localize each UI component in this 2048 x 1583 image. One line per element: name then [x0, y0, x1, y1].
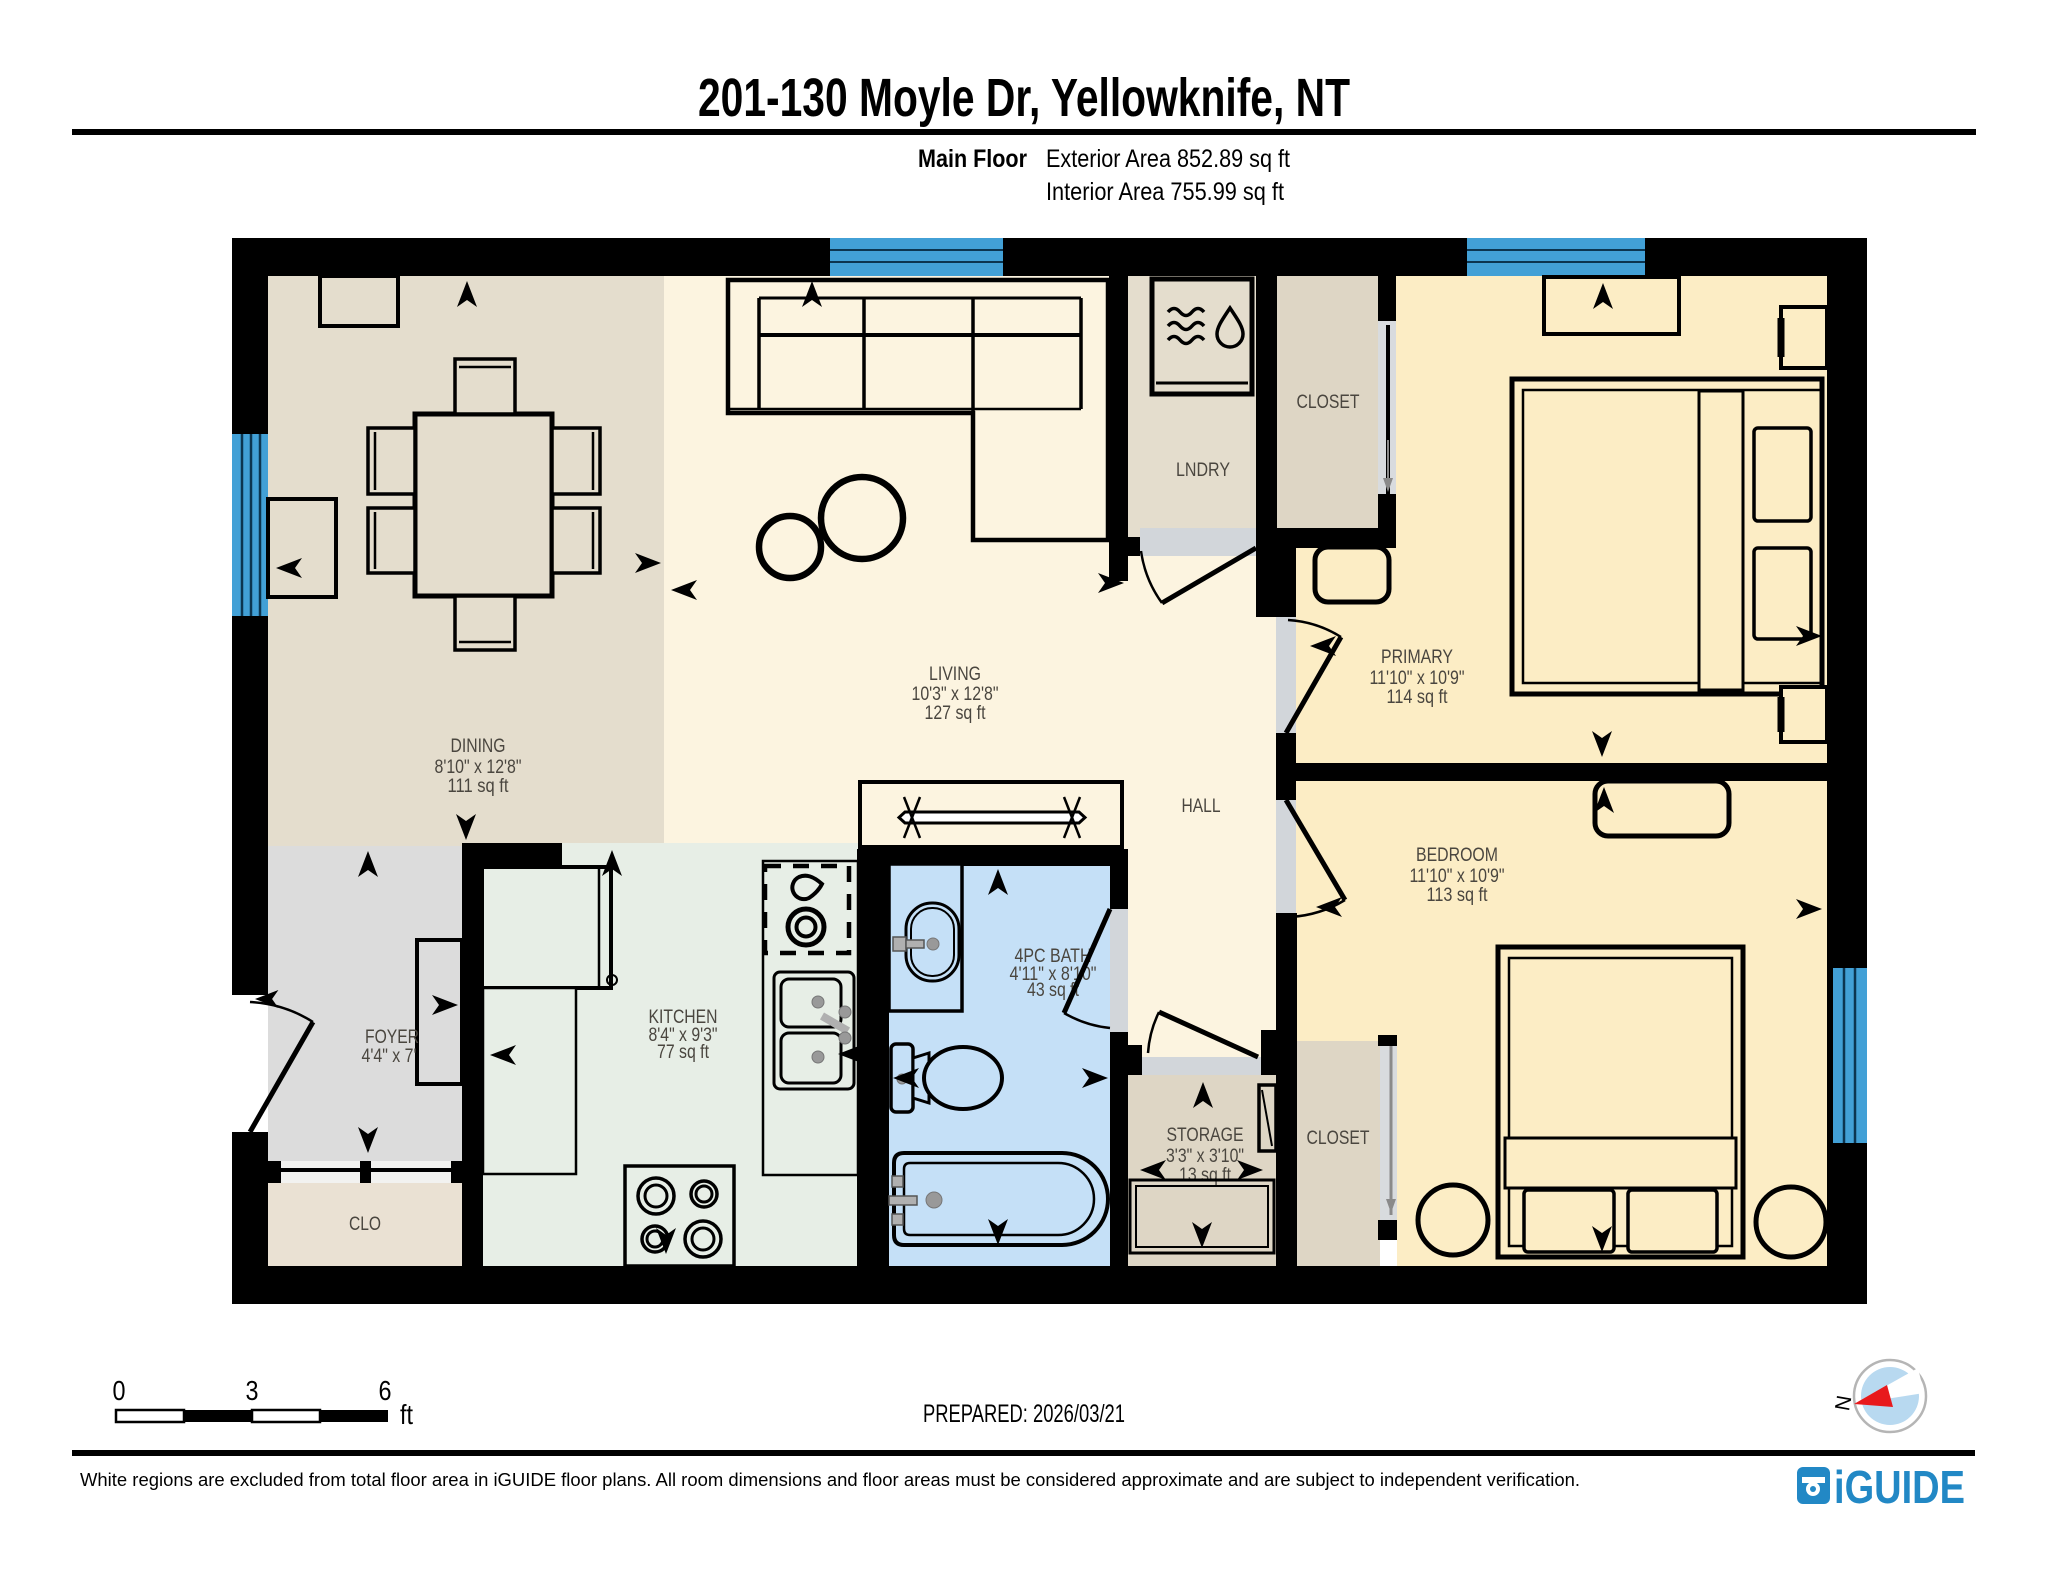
svg-text:HALL: HALL [1182, 796, 1221, 817]
svg-text:6: 6 [379, 1375, 392, 1406]
svg-text:BEDROOM: BEDROOM [1416, 845, 1498, 866]
svg-text:13 sq ft: 13 sq ft [1179, 1165, 1232, 1186]
svg-text:FOYER: FOYER [365, 1027, 419, 1048]
svg-text:PREPARED: 2026/03/21: PREPARED: 2026/03/21 [923, 1400, 1125, 1428]
svg-text:127 sq ft: 127 sq ft [925, 703, 987, 724]
svg-text:STORAGE: STORAGE [1167, 1125, 1244, 1146]
svg-text:Exterior Area 852.89 sq ft: Exterior Area 852.89 sq ft [1046, 145, 1290, 173]
svg-text:77 sq ft: 77 sq ft [657, 1042, 710, 1063]
svg-text:10'3" x 12'8": 10'3" x 12'8" [912, 684, 999, 705]
svg-text:Main Floor: Main Floor [918, 145, 1027, 173]
svg-text:PRIMARY: PRIMARY [1381, 647, 1453, 668]
svg-text:iGUIDE: iGUIDE [1834, 1461, 1965, 1513]
svg-text:CLO: CLO [349, 1214, 381, 1235]
svg-text:LIVING: LIVING [929, 664, 981, 685]
svg-text:113 sq ft: 113 sq ft [1427, 885, 1489, 906]
svg-text:201-130 Moyle Dr, Yellowknife,: 201-130 Moyle Dr, Yellowknife, NT [698, 68, 1350, 128]
svg-text:4'4" x 7': 4'4" x 7' [362, 1046, 417, 1067]
svg-text:3'3" x 3'10": 3'3" x 3'10" [1166, 1146, 1244, 1167]
svg-text:LNDRY: LNDRY [1176, 460, 1230, 481]
svg-text:114 sq ft: 114 sq ft [1387, 687, 1449, 708]
svg-text:White regions are excluded fro: White regions are excluded from total fl… [80, 1470, 1580, 1490]
svg-text:ft: ft [400, 1399, 413, 1430]
svg-text:CLOSET: CLOSET [1297, 392, 1360, 413]
svg-text:0: 0 [113, 1375, 126, 1406]
svg-text:3: 3 [246, 1375, 259, 1406]
svg-text:CLOSET: CLOSET [1307, 1128, 1370, 1149]
svg-text:11'10" x 10'9": 11'10" x 10'9" [1410, 866, 1505, 887]
svg-text:11'10" x 10'9": 11'10" x 10'9" [1370, 668, 1465, 689]
svg-text:Interior Area 755.99 sq ft: Interior Area 755.99 sq ft [1046, 178, 1284, 206]
svg-text:8'10" x 12'8": 8'10" x 12'8" [435, 757, 522, 778]
svg-text:111 sq ft: 111 sq ft [448, 776, 510, 797]
svg-text:DINING: DINING [451, 736, 506, 757]
